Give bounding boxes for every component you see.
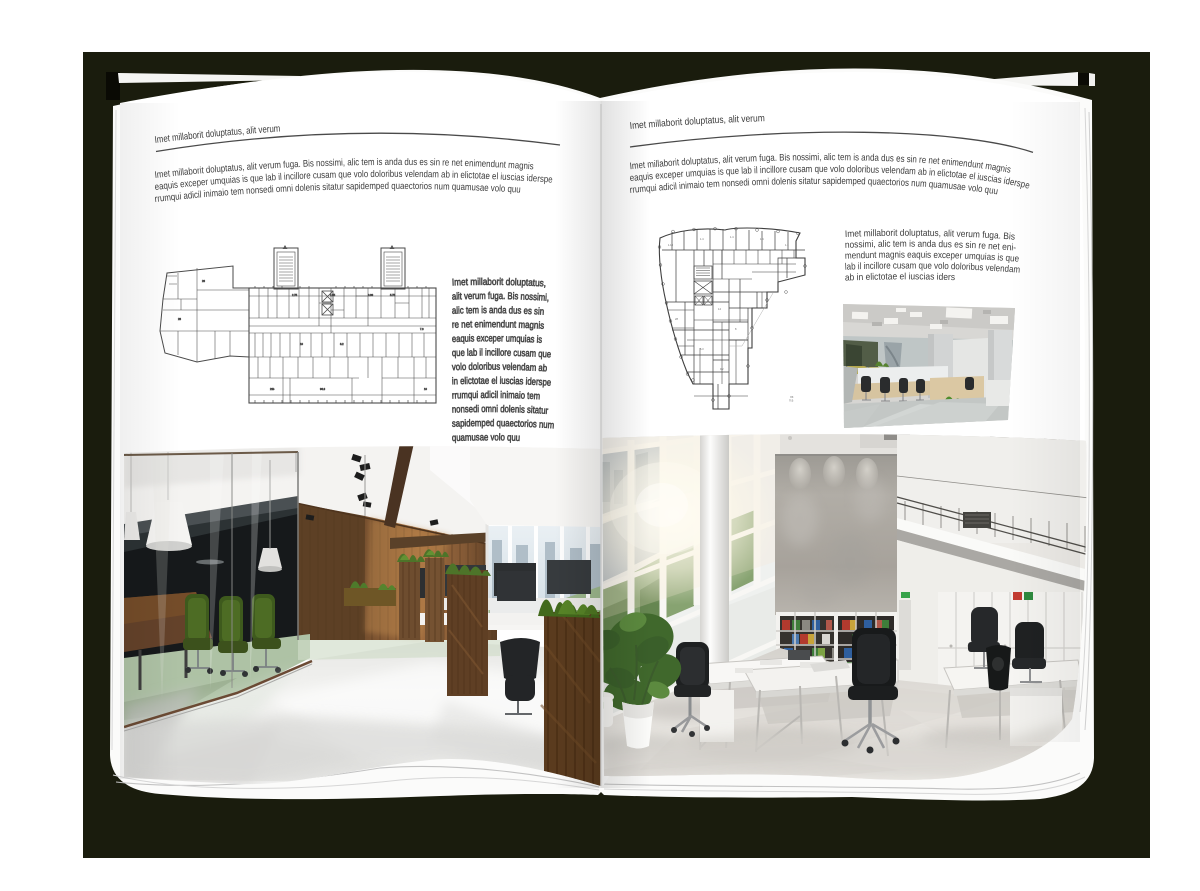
svg-text:6.3: 6.3 <box>700 347 704 351</box>
svg-text:9.2: 9.2 <box>720 367 724 371</box>
svg-text:eaquis exceper umquias is: eaquis exceper umquias is <box>452 333 543 345</box>
svg-text:rrumqui adicil inimaio tem: rrumqui adicil inimaio tem <box>452 390 541 402</box>
svg-text:1.4: 1.4 <box>760 237 764 241</box>
svg-text:alit verum fuga. Bis nossimi,: alit verum fuga. Bis nossimi, <box>452 291 550 304</box>
svg-text:1.4: 1.4 <box>730 235 734 239</box>
svg-text:nonsedi omni dolenis sitatur: nonsedi omni dolenis sitatur <box>452 404 549 417</box>
svg-text:volo doloribus velendam ab: volo doloribus velendam ab <box>452 362 548 375</box>
svg-text:П.Б: П.Б <box>789 399 794 403</box>
svg-text:23b: 23b <box>270 387 275 391</box>
svg-text:quamusae volo quu: quamusae volo quu <box>452 432 521 444</box>
svg-text:5.75: 5.75 <box>390 293 396 297</box>
svg-text:que lab il incillore cusam que: que lab il incillore cusam que <box>452 348 552 361</box>
svg-text:alic tem is anda dus es sin: alic tem is anda dus es sin <box>452 305 545 318</box>
svg-text:1.10: 1.10 <box>668 243 674 247</box>
svg-text:1.4: 1.4 <box>700 237 704 241</box>
svg-text:ЛЗ: ЛЗ <box>790 395 794 399</box>
svg-text:ab in elictotae el iuscias ide: ab in elictotae el iuscias iders <box>845 270 956 282</box>
svg-text:2.55: 2.55 <box>330 293 336 297</box>
svg-text:96.3: 96.3 <box>320 387 326 391</box>
svg-text:8.2: 8.2 <box>340 342 344 346</box>
svg-text:1.1: 1.1 <box>785 243 789 247</box>
svg-text:3.09: 3.09 <box>368 293 374 297</box>
svg-text:Imet millaborit doluptatus,: Imet millaborit doluptatus, <box>452 277 547 290</box>
svg-text:2.75: 2.75 <box>292 293 298 297</box>
svg-text:7.3: 7.3 <box>420 327 424 331</box>
svg-text:re net enimendunt magnis: re net enimendunt magnis <box>452 319 545 332</box>
